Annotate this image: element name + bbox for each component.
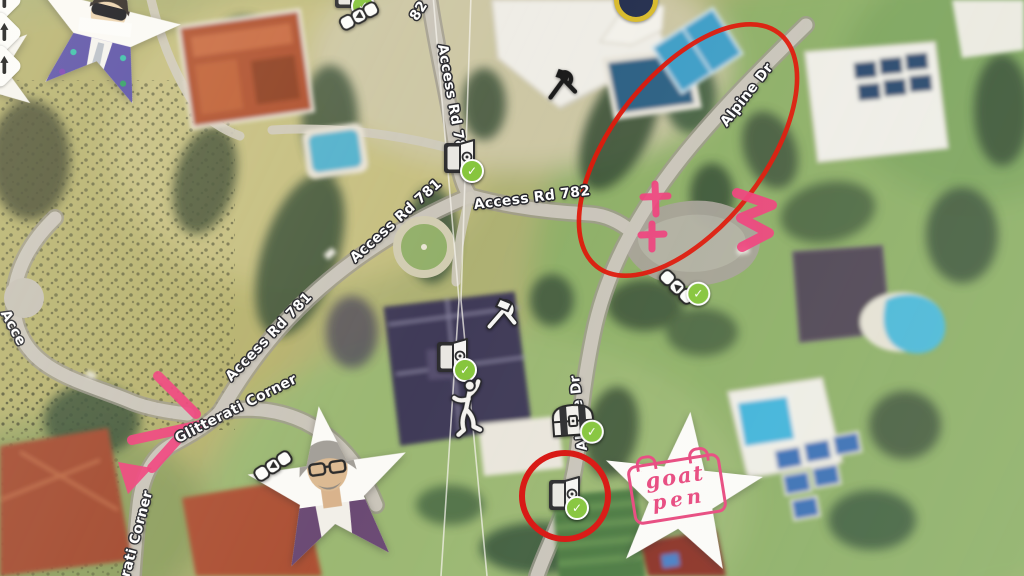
road-label-access-rd-781-a: Access Rd 781 xyxy=(223,290,315,384)
annotation-red-ellipse xyxy=(537,0,839,313)
wrench-hammer-icon[interactable] xyxy=(538,62,584,108)
road-label-alpine-dr-a: Alpine Dr xyxy=(718,61,776,130)
treasure-chest-icon[interactable]: ✓ xyxy=(549,399,598,440)
check-badge: ✓ xyxy=(460,159,484,183)
open-door-checkpoint-icon[interactable]: ✓ xyxy=(546,474,582,514)
check-badge: ✓ xyxy=(579,419,605,445)
road-label-access-partial: Acce xyxy=(0,308,28,348)
dancer-icon[interactable] xyxy=(445,377,493,442)
pink-spray-arrowhead xyxy=(118,462,152,494)
star-decal-celebrity-2 xyxy=(234,391,426,576)
road-label-glitterati-corner-partial: Glitterati Corner xyxy=(107,489,155,576)
wrench-hammer-icon[interactable] xyxy=(480,294,522,336)
check-badge: ✓ xyxy=(565,496,589,520)
road-label-access-rd-782-partial: 82 xyxy=(408,0,431,23)
road-label-access-rd-781-b: Access Rd 781 xyxy=(348,177,445,266)
road-label-access-rd-782: Access Rd 782 xyxy=(473,184,591,212)
check-badge: ✓ xyxy=(686,282,710,306)
open-door-checkpoint-icon[interactable]: ✓ xyxy=(434,336,470,376)
yellow-ring-badge[interactable] xyxy=(614,0,658,22)
segmented-capsule-arrow-icon[interactable]: ✓ xyxy=(656,266,699,308)
game-map[interactable]: goat pen Access Rd 782 Access Rd 782 82 … xyxy=(0,0,1024,576)
open-door-checkpoint-icon[interactable]: ✓ xyxy=(441,137,477,177)
